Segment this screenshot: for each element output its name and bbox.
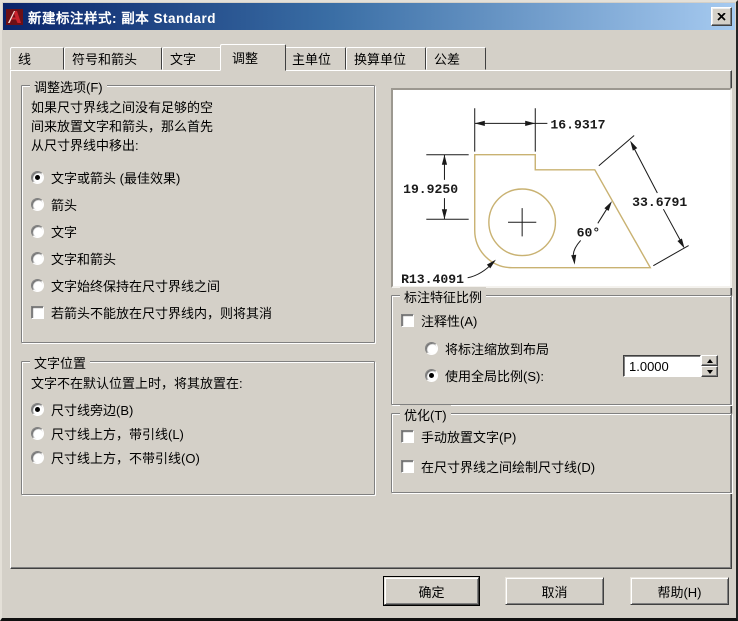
radio-button[interactable] — [31, 427, 44, 440]
center-mark — [508, 208, 536, 236]
checkbox-suppress-arrows[interactable]: 若箭头不能放在尺寸界线内，则将其消 — [31, 302, 374, 322]
close-icon — [717, 13, 726, 21]
radio-button[interactable] — [31, 225, 44, 238]
radio-text-or-arrows[interactable]: 文字或箭头 (最佳效果) — [31, 167, 374, 187]
radio-button[interactable] — [31, 171, 44, 184]
text-placement-group: 文字位置 文字不在默认位置上时，将其放置在: 尺寸线旁边(B) 尺寸线上方，带引… — [21, 361, 375, 495]
radio-button[interactable] — [31, 279, 44, 292]
description-line: 间来放置文字和箭头，那么首先 — [31, 117, 370, 136]
radio-label[interactable]: 文字 — [51, 222, 77, 241]
checkbox[interactable] — [401, 460, 414, 473]
tab-primary-units[interactable]: 主单位 — [284, 47, 346, 70]
group-title: 文字位置 — [30, 353, 90, 372]
radio-label[interactable]: 箭头 — [51, 195, 77, 214]
radio-beside-dim-line[interactable]: 尺寸线旁边(B) — [31, 399, 374, 419]
radio-arrows[interactable]: 箭头 — [31, 194, 374, 214]
radio-button[interactable] — [31, 198, 44, 211]
window-title: 新建标注样式: 副本 Standard — [28, 7, 216, 27]
tab-lines[interactable]: 线 — [10, 47, 64, 70]
help-button[interactable]: 帮助(H) — [630, 577, 729, 605]
dim-top-text: 16.9317 — [550, 117, 605, 132]
radio-button[interactable] — [425, 369, 438, 382]
autocad-logo-icon — [6, 9, 23, 25]
tab-text[interactable]: 文字 — [162, 47, 222, 70]
description-line: 如果尺寸界线之间没有足够的空 — [31, 98, 370, 117]
checkbox-label[interactable]: 若箭头不能放在尺寸界线内，则将其消 — [51, 303, 272, 322]
radio-button[interactable] — [31, 252, 44, 265]
group-title: 调整选项(F) — [30, 77, 107, 96]
radio-both-text-arrows[interactable]: 文字和箭头 — [31, 248, 374, 268]
checkbox-label[interactable]: 在尺寸界线之间绘制尺寸线(D) — [421, 457, 595, 476]
dim-angle-text: 60° — [577, 225, 601, 240]
cancel-button[interactable]: 取消 — [505, 577, 604, 605]
dimension-preview: 16.9317 19.9250 33.6791 60° R13.4091 — [391, 88, 732, 288]
radio-label[interactable]: 使用全局比例(S): — [445, 366, 544, 385]
radio-button[interactable] — [425, 342, 438, 355]
dim-diagonal-text: 33.6791 — [632, 195, 687, 210]
dimension-style-dialog: 新建标注样式: 副本 Standard 线 符号和箭头 文字 调整 主单位 换算… — [0, 0, 738, 621]
description-line: 从尺寸界线中移出: — [31, 136, 370, 155]
dim-left-text: 19.9250 — [403, 182, 458, 197]
group-title: 优化(T) — [400, 405, 451, 424]
ok-button[interactable]: 确定 — [384, 577, 479, 605]
checkbox[interactable] — [401, 430, 414, 443]
fine-tuning-group: 优化(T) 手动放置文字(P) 在尺寸界线之间绘制尺寸线(D) — [391, 413, 732, 493]
close-button[interactable] — [711, 7, 732, 26]
tab-label: 线 — [18, 49, 31, 68]
radio-button[interactable] — [31, 403, 44, 416]
preview-drawing: 16.9317 19.9250 33.6791 60° R13.4091 — [393, 90, 730, 286]
radio-text[interactable]: 文字 — [31, 221, 374, 241]
overall-scale-input[interactable]: 1.0000 — [623, 355, 701, 377]
radio-over-dim-line-with-leader[interactable]: 尺寸线上方，带引线(L) — [31, 423, 374, 443]
radio-keep-text-between-ext-lines[interactable]: 文字始终保持在尺寸界线之间 — [31, 275, 374, 295]
tab-label: 主单位 — [292, 49, 331, 68]
checkbox-annotative[interactable]: 注释性(A) — [401, 310, 731, 330]
checkbox-label[interactable]: 注释性(A) — [421, 311, 477, 330]
tab-label: 文字 — [170, 49, 196, 68]
tab-fit[interactable]: 调整 — [220, 44, 286, 71]
radio-label[interactable]: 尺寸线上方，带引线(L) — [51, 424, 184, 443]
spinner-down-button[interactable] — [701, 366, 718, 377]
checkbox[interactable] — [401, 314, 414, 327]
overall-scale-spinner: 1.0000 — [623, 355, 718, 377]
checkbox-draw-dim-line-between-ext-lines[interactable]: 在尺寸界线之间绘制尺寸线(D) — [401, 456, 731, 476]
checkbox-label[interactable]: 手动放置文字(P) — [421, 427, 516, 446]
fit-options-description: 如果尺寸界线之间没有足够的空 间来放置文字和箭头，那么首先 从尺寸界线中移出: — [22, 86, 374, 155]
radio-label[interactable]: 文字和箭头 — [51, 249, 116, 268]
tab-symbols-arrows[interactable]: 符号和箭头 — [64, 47, 162, 70]
checkbox[interactable] — [31, 306, 44, 319]
tab-alternate-units[interactable]: 换算单位 — [346, 47, 426, 70]
scale-features-group: 标注特征比例 注释性(A) 将标注缩放到布局 使用全局比例(S): 1.0000 — [391, 295, 732, 405]
tab-label: 公差 — [434, 49, 460, 68]
radio-label[interactable]: 将标注缩放到布局 — [445, 339, 549, 358]
tab-label: 调整 — [232, 48, 258, 67]
tab-label: 符号和箭头 — [72, 49, 137, 68]
group-title: 标注特征比例 — [400, 287, 486, 306]
radio-label[interactable]: 文字始终保持在尺寸界线之间 — [51, 276, 220, 295]
part-outline — [475, 155, 651, 268]
radio-label[interactable]: 文字或箭头 (最佳效果) — [51, 168, 180, 187]
tab-tolerances[interactable]: 公差 — [426, 47, 486, 70]
radio-label[interactable]: 尺寸线上方，不带引线(O) — [51, 448, 200, 467]
radio-label[interactable]: 尺寸线旁边(B) — [51, 400, 133, 419]
checkbox-place-text-manually[interactable]: 手动放置文字(P) — [401, 426, 731, 446]
radio-over-dim-line-no-leader[interactable]: 尺寸线上方，不带引线(O) — [31, 447, 374, 467]
fit-options-group: 调整选项(F) 如果尺寸界线之间没有足够的空 间来放置文字和箭头，那么首先 从尺… — [21, 85, 375, 343]
dim-radius-text: R13.4091 — [401, 272, 464, 286]
fit-tab-page: 调整选项(F) 如果尺寸界线之间没有足够的空 间来放置文字和箭头，那么首先 从尺… — [10, 70, 732, 569]
title-bar[interactable]: 新建标注样式: 副本 Standard — [3, 3, 735, 30]
tab-strip: 线 符号和箭头 文字 调整 主单位 换算单位 公差 — [10, 43, 486, 70]
spinner-up-button[interactable] — [701, 355, 718, 366]
radio-button[interactable] — [31, 451, 44, 464]
tab-label: 换算单位 — [354, 49, 406, 68]
